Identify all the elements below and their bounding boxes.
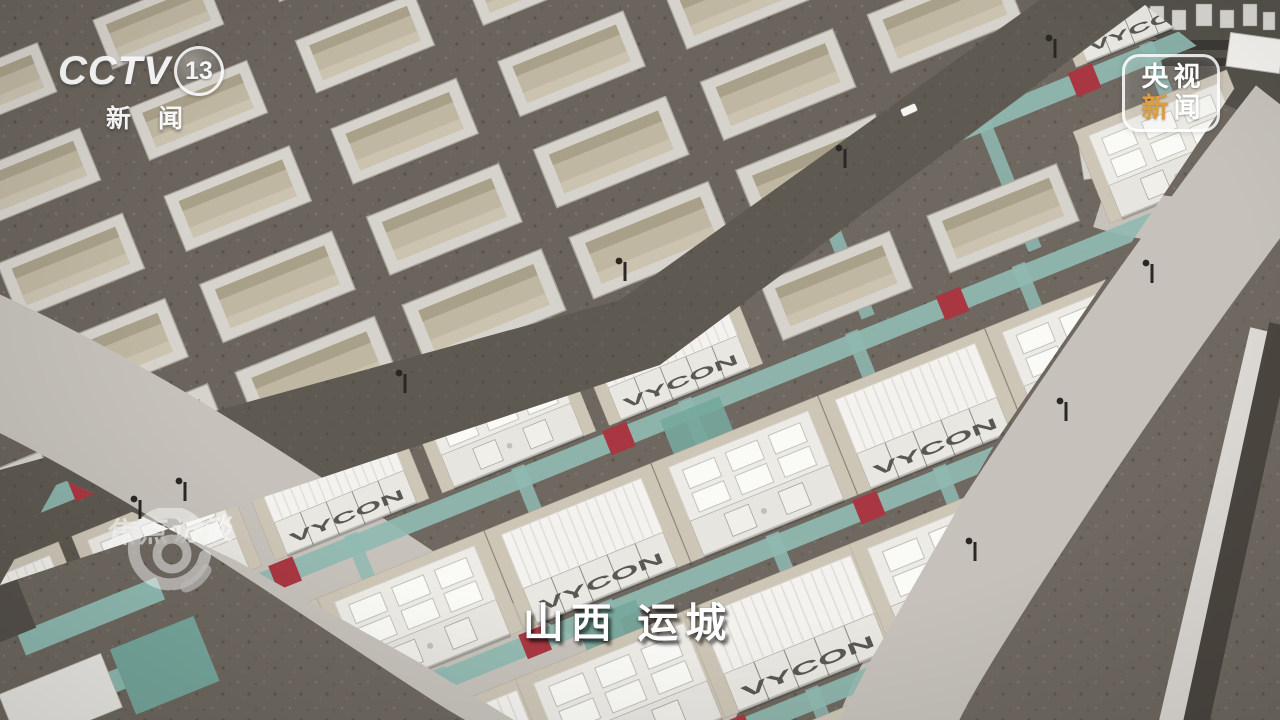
channel-number: 13: [185, 57, 213, 86]
channel-13-circle: 13: [174, 46, 224, 96]
cctv-logo-row: CCTV 13: [58, 46, 224, 96]
jiaodian-fangtan-watermark: 焦点访谈: [102, 508, 236, 550]
substation-container: [1226, 32, 1280, 73]
badge-bottom-row: 新闻: [1137, 93, 1206, 124]
cctv-news-badge: 央视 新闻: [1122, 54, 1220, 132]
badge-accent-char: 新: [1142, 93, 1174, 123]
cctv-news-label: 新闻: [106, 99, 224, 135]
badge-top-row: 央视: [1137, 62, 1206, 93]
watermark-program-name: 焦点访谈: [106, 506, 238, 552]
badge-plain-char: 闻: [1174, 93, 1206, 123]
cctv-wordmark: CCTV: [58, 49, 171, 94]
cctv13-logo: CCTV 13 新闻: [58, 46, 224, 135]
location-caption: 山西 运城: [523, 589, 733, 649]
broadcast-frame: VYCON: [0, 0, 1280, 720]
